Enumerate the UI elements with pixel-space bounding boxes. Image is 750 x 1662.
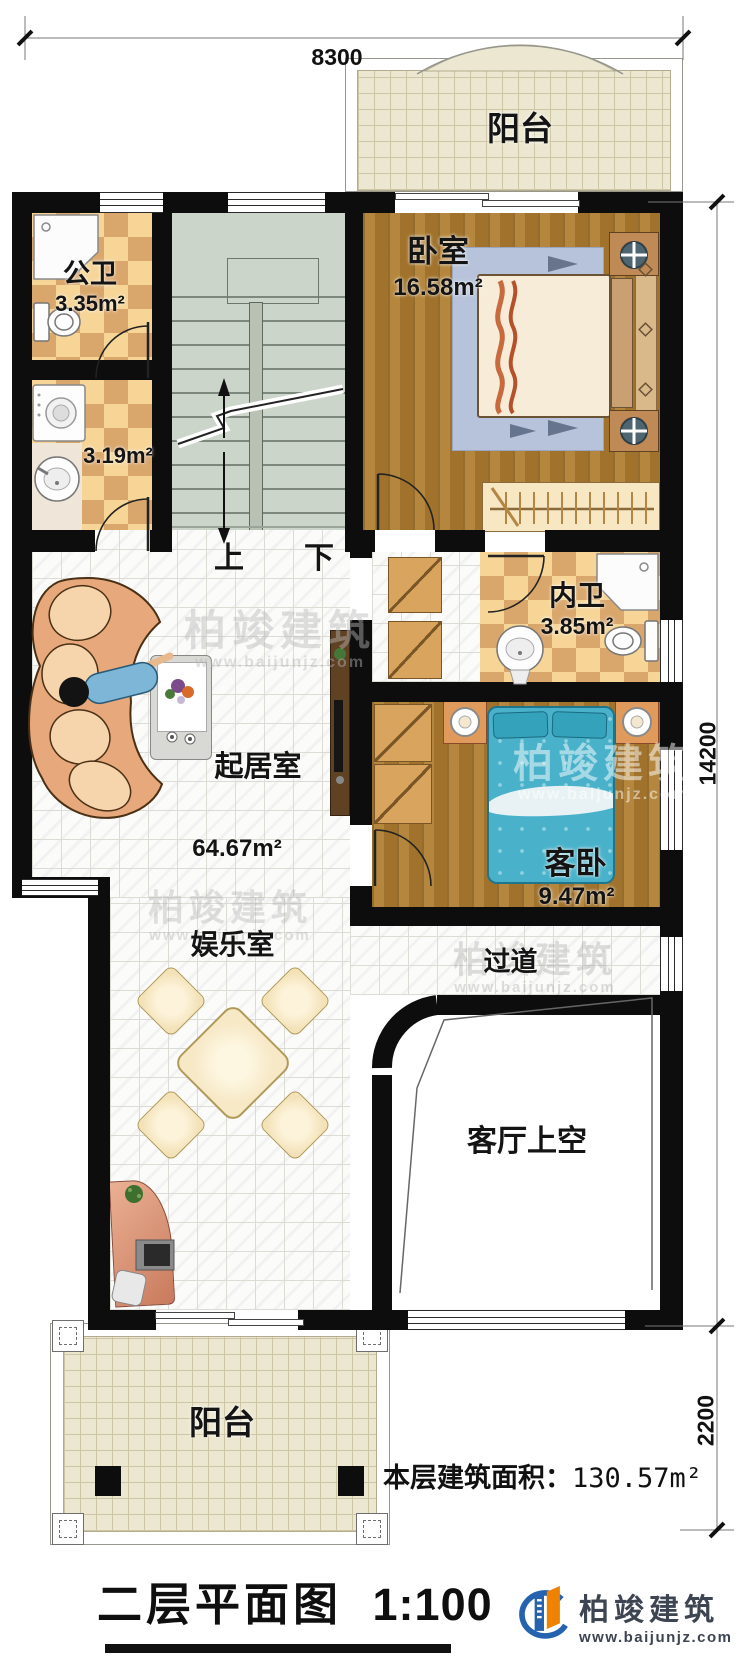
sliding-door [228,1319,304,1326]
bedroom-wardrobe [482,482,660,532]
coffee-table-top [157,662,207,732]
dimension-side: 14200 [695,706,722,802]
window [22,879,98,896]
wall [325,192,395,213]
room-label-guest: 客卧 [518,848,633,881]
wall [660,991,683,1310]
room-label-public-bath: 公卫 3.35m² [40,260,140,317]
wall [88,1310,156,1330]
dimension-top: 8300 [287,44,387,71]
nightstand [609,232,659,276]
sliding-door [395,193,489,200]
wall [32,360,152,380]
room-area: 3.85m² [541,613,614,639]
room-label-living: 起居室 [198,752,318,782]
title-scale: 1:100 [373,1579,493,1630]
brand-logo-icon [515,1582,573,1648]
stairs-down-label: 下 [297,543,341,575]
drawing-title: 二层平面图 1:100 [97,1568,517,1633]
guest-bed-fold [487,781,615,820]
wall [163,192,228,213]
room-label-balcony-top: 阳台 [465,112,575,147]
room-name: 卧室 [407,234,469,269]
room-label-entertainment: 娱乐室 [175,930,290,959]
wall [435,530,485,552]
floor-area-summary: 本层建筑面积：130.57m² [383,1456,733,1495]
guest-nightstand [443,700,487,744]
corridor-door-panel [388,621,442,679]
stair-landing-outline [227,258,319,304]
window [228,192,325,213]
window [660,620,683,682]
guest-nightstand [615,700,659,744]
tv-cabinet [330,630,350,816]
room-name: 内卫 [549,580,605,611]
wall [350,620,372,825]
brand-name: 柏竣建筑 [579,1585,732,1629]
balcony-column [95,1466,121,1496]
window [660,937,683,991]
sliding-door [482,200,580,207]
room-label-laundry: 3.19m² [78,444,158,467]
wall [88,898,110,1310]
guest-wardrobe-panel [374,704,432,762]
wall [350,682,683,702]
brand-logo: 柏竣建筑 www.baijunjz.com [515,1582,747,1648]
title-underline [105,1644,451,1653]
stair-bottom-edge [172,526,345,528]
bedroom-headboard [611,278,633,408]
room-area: 3.35m² [55,291,125,316]
room-area: 16.58m² [393,274,482,301]
balcony-post [52,1513,84,1545]
dimension-balcony: 2200 [693,1381,720,1461]
guest-wardrobe-panel [374,764,432,824]
room-label-balcony-bottom: 阳台 [167,1406,277,1441]
nightstand [609,410,659,452]
floor-area-value: 130.57m² [572,1463,702,1494]
balcony-post [356,1513,388,1545]
wall [660,682,683,750]
balcony-post [52,1320,84,1352]
wall [345,213,363,530]
brand-url: www.baijunjz.com [579,1629,732,1646]
floor-plan-canvas: 柏竣建筑 www.baijunjz.com 柏竣建筑 www.baijunjz.… [0,0,750,1662]
stair-railing [249,302,263,538]
wall [298,1310,408,1330]
brand-text-block: 柏竣建筑 www.baijunjz.com [579,1585,732,1646]
wall [625,1310,683,1330]
floor-area-label: 本层建筑面积： [383,1463,572,1493]
room-name: 公卫 [63,259,117,289]
window [408,1310,625,1330]
room-label-bedroom: 卧室 16.58m² [378,236,498,301]
wall [372,1075,392,1310]
wall [12,213,32,898]
room-area-guest: 9.47m² [524,884,629,909]
title-text: 二层平面图 [97,1579,342,1630]
window [660,750,683,850]
window [100,192,163,213]
guest-pillow [552,711,608,739]
wall [660,192,683,620]
wall [152,213,172,530]
corridor-door-panel [388,557,442,613]
wall [350,907,683,926]
wall [660,850,683,937]
room-area-living: 64.67m² [187,836,287,861]
sliding-door [155,1312,235,1319]
wall [150,530,172,552]
guest-pillow [493,711,549,739]
room-label-hallway: 过道 [468,948,553,976]
wall [350,552,372,558]
room-label-void: 客厅上空 [452,1126,602,1158]
room-label-inner-bath: 内卫 3.85m² [522,581,632,640]
balcony-column [338,1466,364,1496]
laundry-marble-patch [32,443,82,530]
wall [345,530,375,552]
wall [12,192,100,213]
wall [12,530,95,552]
wall [437,995,683,1015]
coffee-table [150,655,212,760]
stairs-up-label: 上 [207,543,251,575]
